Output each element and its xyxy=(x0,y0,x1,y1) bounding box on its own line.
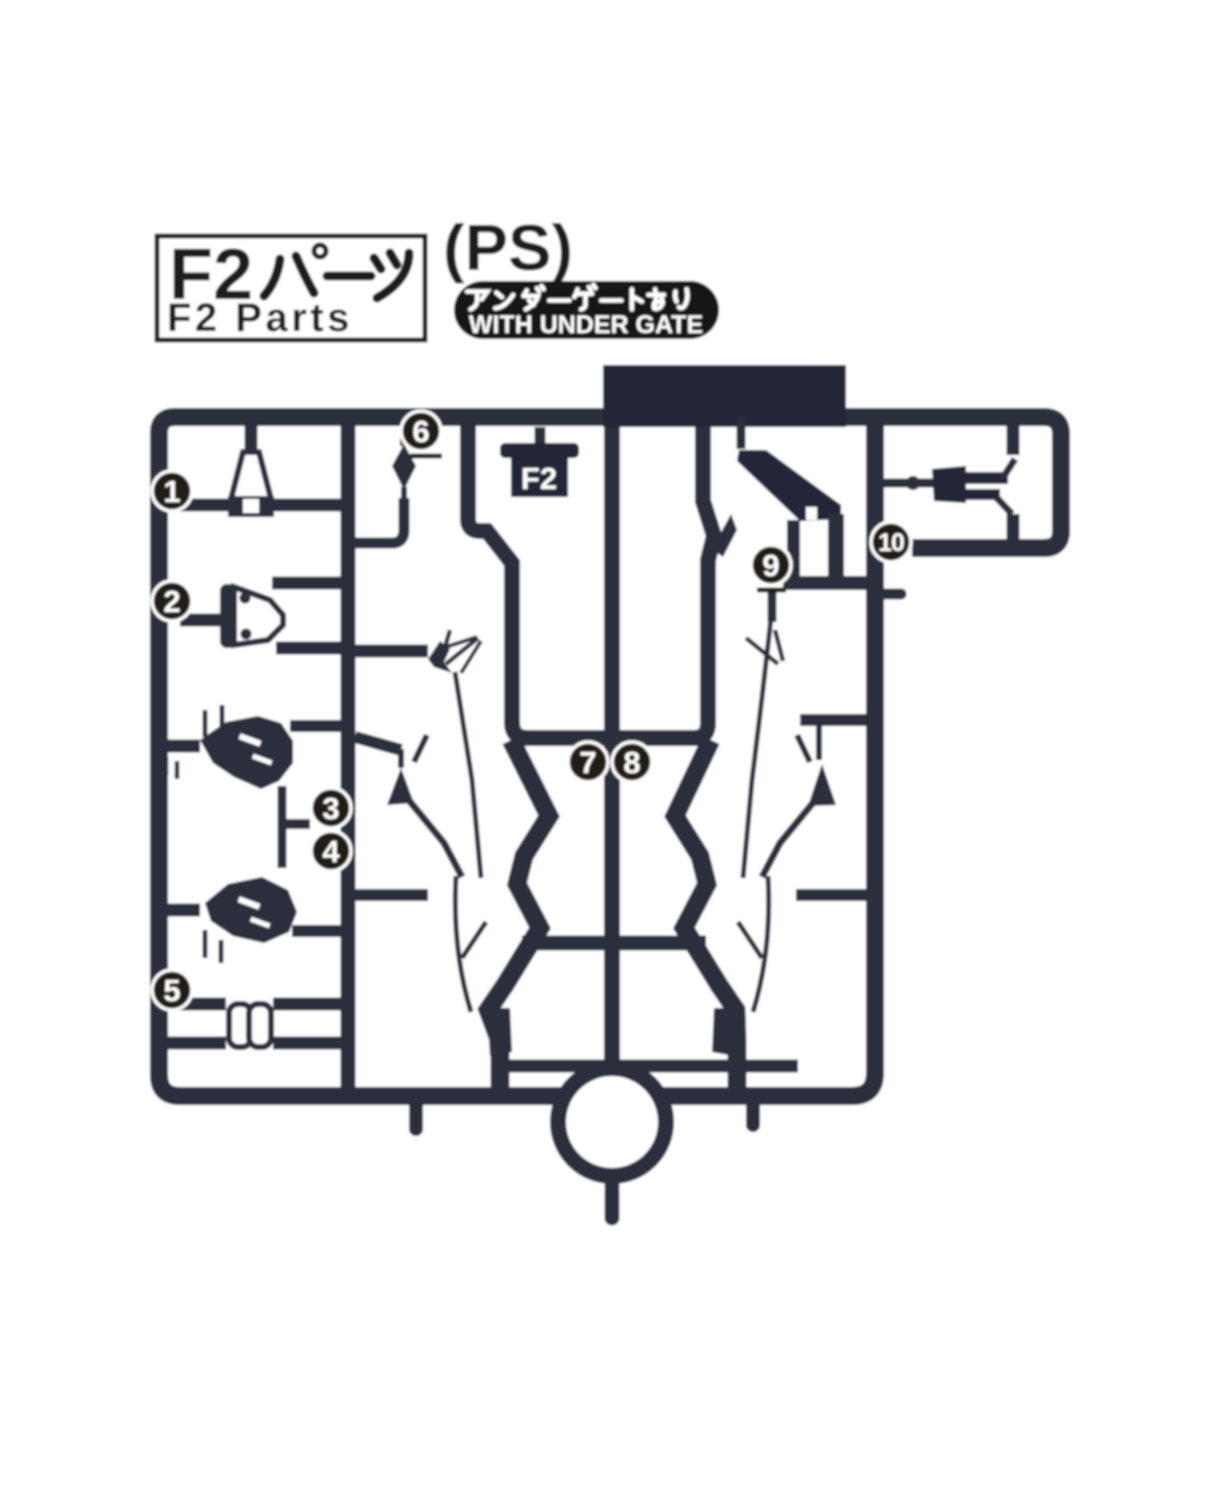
svg-text:8: 8 xyxy=(623,745,640,780)
svg-text:4: 4 xyxy=(322,834,340,869)
svg-text:3: 3 xyxy=(322,791,339,826)
svg-text:5: 5 xyxy=(163,973,180,1008)
svg-text:10: 10 xyxy=(878,529,904,557)
svg-text:9: 9 xyxy=(762,548,779,583)
svg-text:(PS): (PS) xyxy=(443,211,573,284)
svg-text:2: 2 xyxy=(163,584,180,619)
svg-text:F2: F2 xyxy=(521,461,557,496)
svg-text:1: 1 xyxy=(163,474,180,509)
svg-text:F2 Parts: F2 Parts xyxy=(167,296,353,340)
svg-text:7: 7 xyxy=(579,745,596,780)
svg-text:6: 6 xyxy=(412,414,429,449)
svg-text:WITH UNDER GATE: WITH UNDER GATE xyxy=(469,311,703,339)
